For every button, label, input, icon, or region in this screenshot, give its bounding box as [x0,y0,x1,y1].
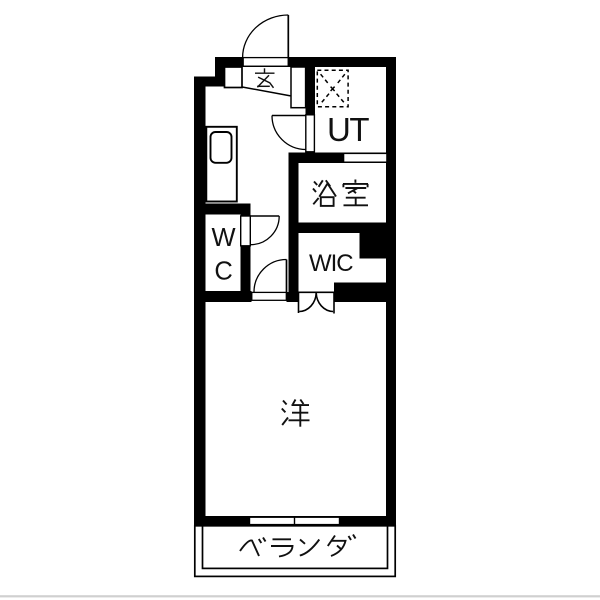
svg-text:W: W [212,224,236,252]
svg-text:UT: UT [327,111,369,148]
svg-text:WIC: WIC [309,250,353,277]
svg-text:C: C [214,258,232,286]
